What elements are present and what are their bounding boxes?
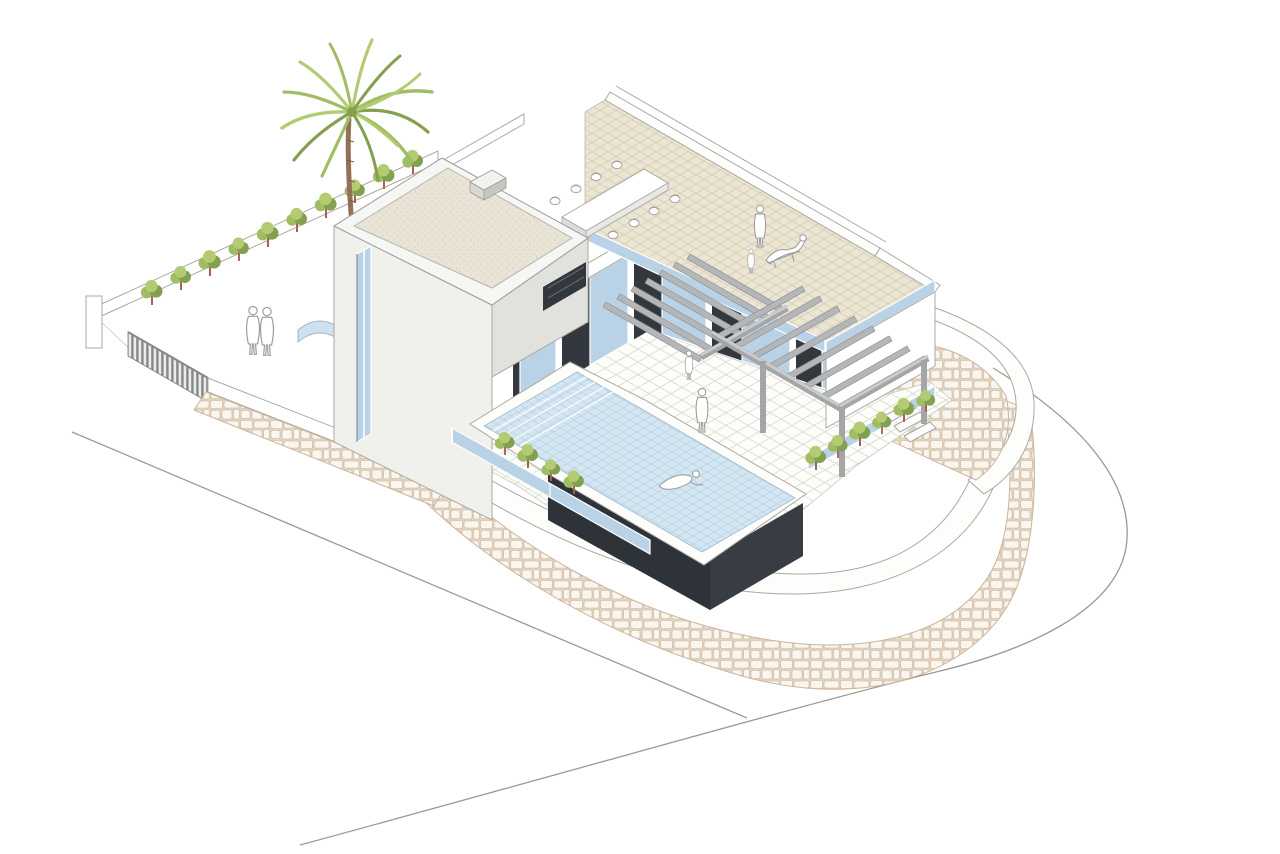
palm-fronds <box>282 40 432 180</box>
gate-pier-left <box>86 296 102 348</box>
villa-axonometric-illustration <box>0 0 1280 854</box>
palm-crown <box>347 107 357 117</box>
cube-slot-window <box>357 246 371 442</box>
illustration-canvas <box>0 0 1280 854</box>
